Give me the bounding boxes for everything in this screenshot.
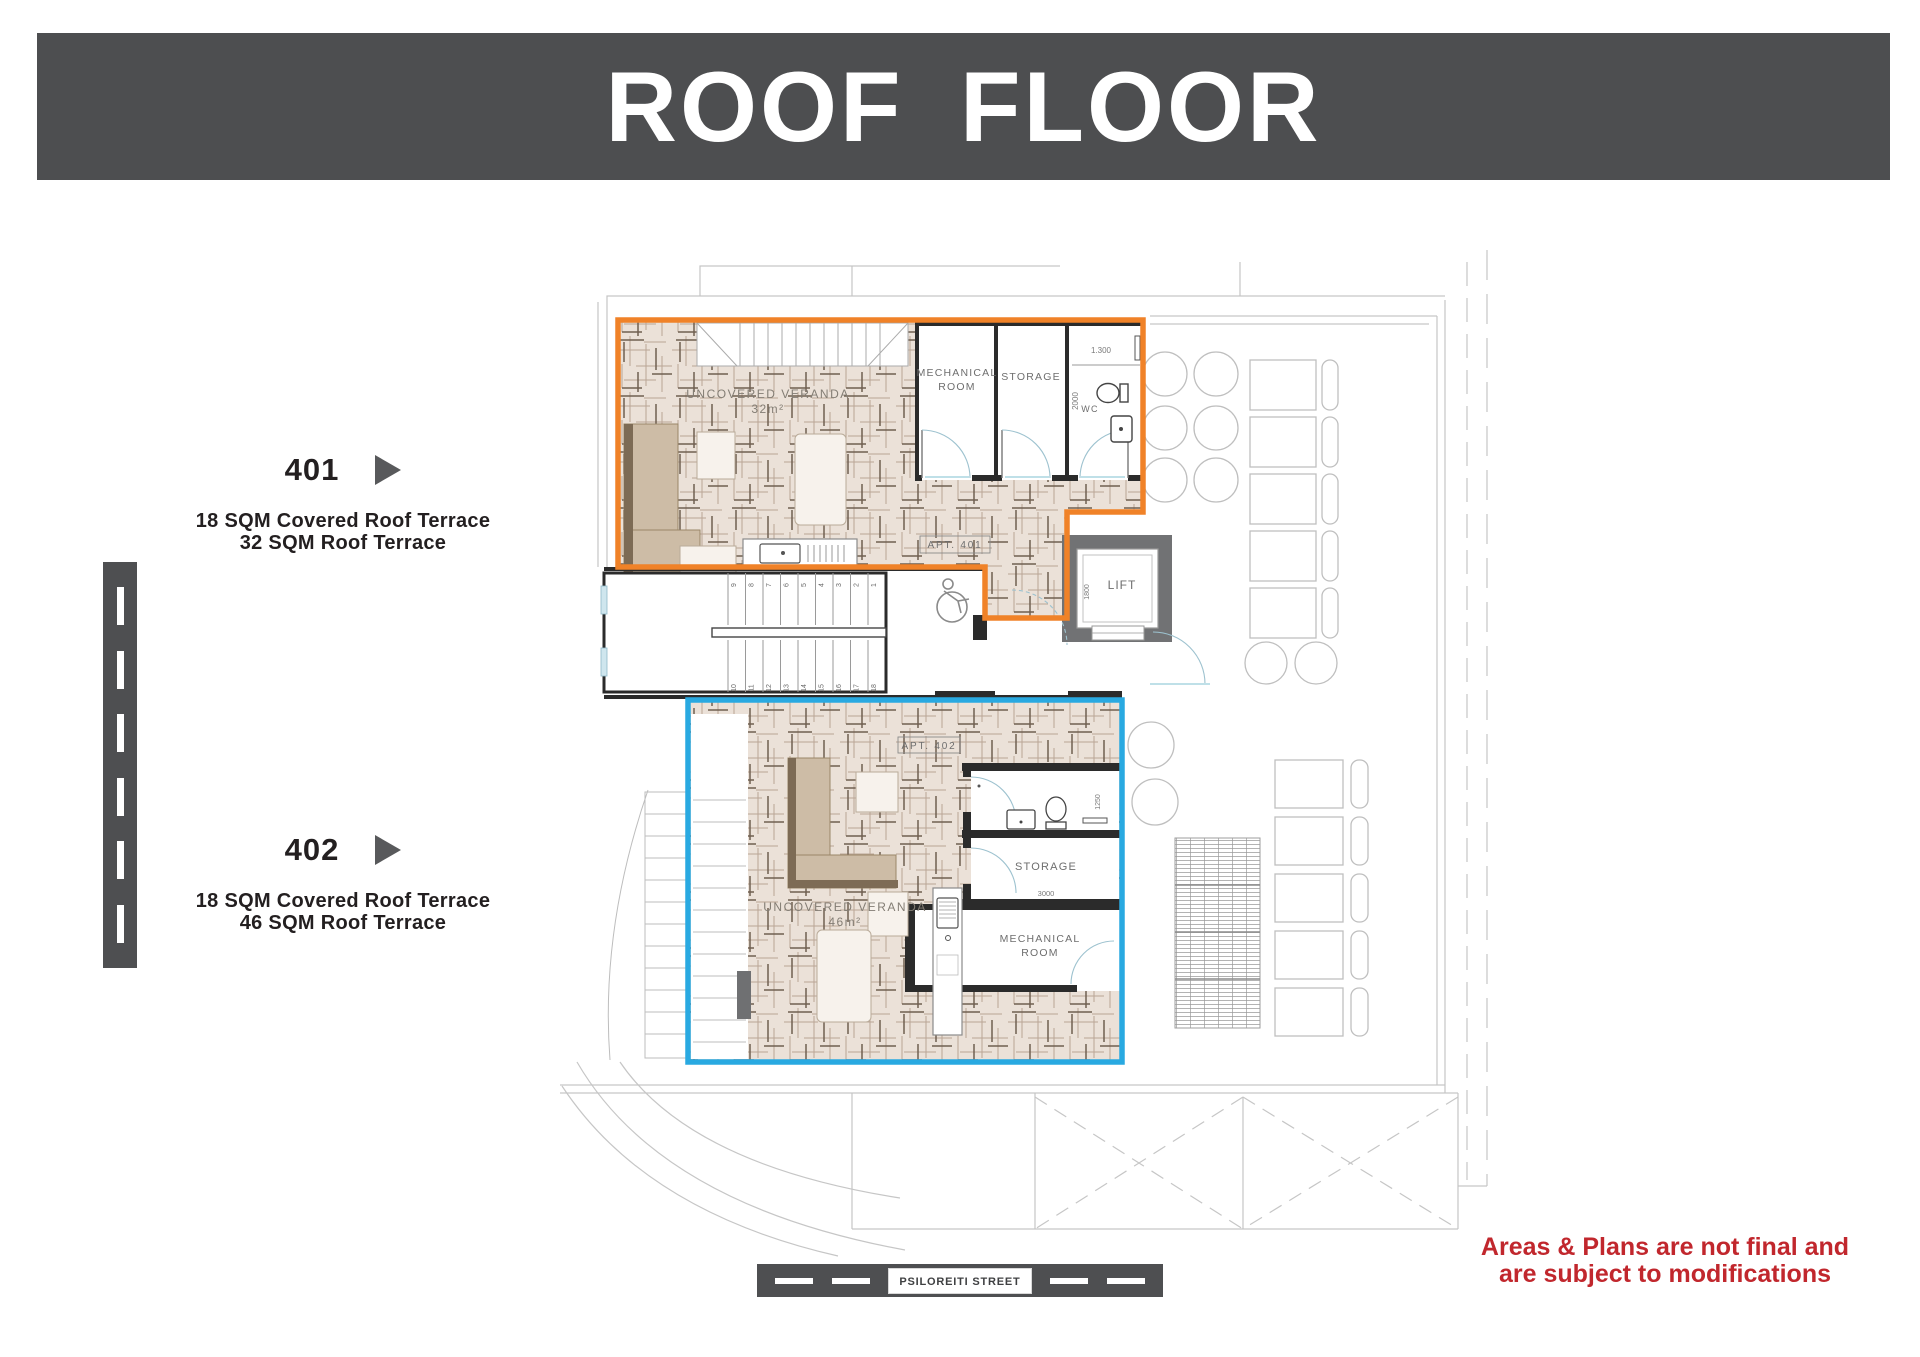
wheelchair-symbol	[937, 579, 969, 622]
skylight-band	[697, 323, 908, 366]
disclaimer-line2: are subject to modifications	[1440, 1261, 1890, 1288]
floor-plan: 1.300 2000 WC MECHANICAL ROOM STORAGE UN…	[0, 0, 1920, 1357]
stair-step-number: 2	[854, 583, 861, 587]
street-name-box: PSILOREITI STREET	[888, 1268, 1031, 1294]
stair-step-number: 9	[731, 583, 738, 587]
road-dash	[775, 1278, 813, 1284]
disclaimer-line1: Areas & Plans are not final and	[1440, 1234, 1890, 1261]
veranda-area-401: 32m²	[751, 402, 784, 416]
stair-step-number: 18	[871, 684, 878, 692]
toilet-icon	[1097, 384, 1119, 403]
roof-floor-poster: ROOF FLOOR 401 18 SQM Covered Roof Terra…	[0, 0, 1920, 1357]
wc-label-401: WC	[1081, 404, 1098, 414]
veranda-area-402: 46m²	[828, 915, 861, 929]
stair-step-number: 3	[836, 583, 843, 587]
apt-402-left-strip	[691, 714, 751, 1059]
svg-text:APT. 402: APT. 402	[902, 741, 957, 752]
dim-wc-width-401: 1.300	[1091, 346, 1112, 355]
dim-wc-402: 1250	[1095, 794, 1102, 810]
kitchen-counter-402	[933, 888, 962, 1035]
stair-step-number: 4	[819, 583, 826, 587]
stair-handrail	[712, 628, 886, 637]
storage-label-402: STORAGE	[1015, 861, 1077, 873]
stair-step-number: 12	[766, 684, 773, 692]
stair-step-number: 16	[836, 684, 843, 692]
street-name: PSILOREITI STREET	[899, 1276, 1020, 1288]
stair-step-number: 1	[871, 583, 878, 587]
apt-401-rooms: 1.300 2000 WC MECHANICAL ROOM STORAGE	[915, 320, 1143, 480]
stair-step-number: 8	[749, 583, 756, 587]
stair-step-number: 11	[749, 684, 756, 691]
stair-step-number: 15	[819, 684, 826, 692]
stair-step-number: 5	[801, 583, 808, 587]
lift-dim: 1800	[1084, 584, 1091, 600]
svg-text:ROOM: ROOM	[938, 381, 975, 393]
storage-label-401: STORAGE	[1001, 371, 1061, 383]
mech-room-label-401: MECHANICAL	[917, 367, 998, 379]
veranda-label-402: UNCOVERED VERANDA	[763, 900, 927, 914]
mech-room-label-402: MECHANICAL	[1000, 933, 1081, 945]
sink-icon	[1007, 810, 1035, 829]
stair-numbers-bottom: 101112131415161718	[731, 684, 878, 692]
toilet-icon	[1046, 797, 1066, 821]
external-stair	[608, 790, 687, 1060]
road-dash	[1050, 1278, 1088, 1284]
planter	[737, 971, 751, 1019]
stair-step-number: 10	[731, 684, 738, 692]
stair-step-number: 7	[766, 583, 773, 587]
street-horizontal-bar: PSILOREITI STREET	[757, 1264, 1163, 1297]
lift: LIFT 1800	[1062, 535, 1172, 642]
veranda-label-401: UNCOVERED VERANDA	[686, 387, 850, 401]
road-dash	[832, 1278, 870, 1284]
road-dash	[1107, 1278, 1145, 1284]
lift-label: LIFT	[1108, 578, 1137, 592]
dim-storage-402: 3000	[1038, 889, 1055, 898]
stairwell: 987654321 101112131415161718	[601, 569, 985, 692]
dim-wc-depth-401: 2000	[1071, 392, 1080, 410]
stair-step-number: 13	[784, 684, 791, 692]
stair-step-number: 6	[784, 583, 791, 587]
svg-text:ROOM: ROOM	[1021, 947, 1058, 959]
stair-step-number: 14	[801, 684, 808, 692]
disclaimer-note: Areas & Plans are not final and are subj…	[1440, 1234, 1890, 1288]
svg-text:APT. 401: APT. 401	[928, 540, 983, 551]
stair-numbers-top: 987654321	[731, 583, 878, 587]
stair-step-number: 17	[854, 684, 861, 692]
pergola-grid	[1175, 838, 1260, 1028]
